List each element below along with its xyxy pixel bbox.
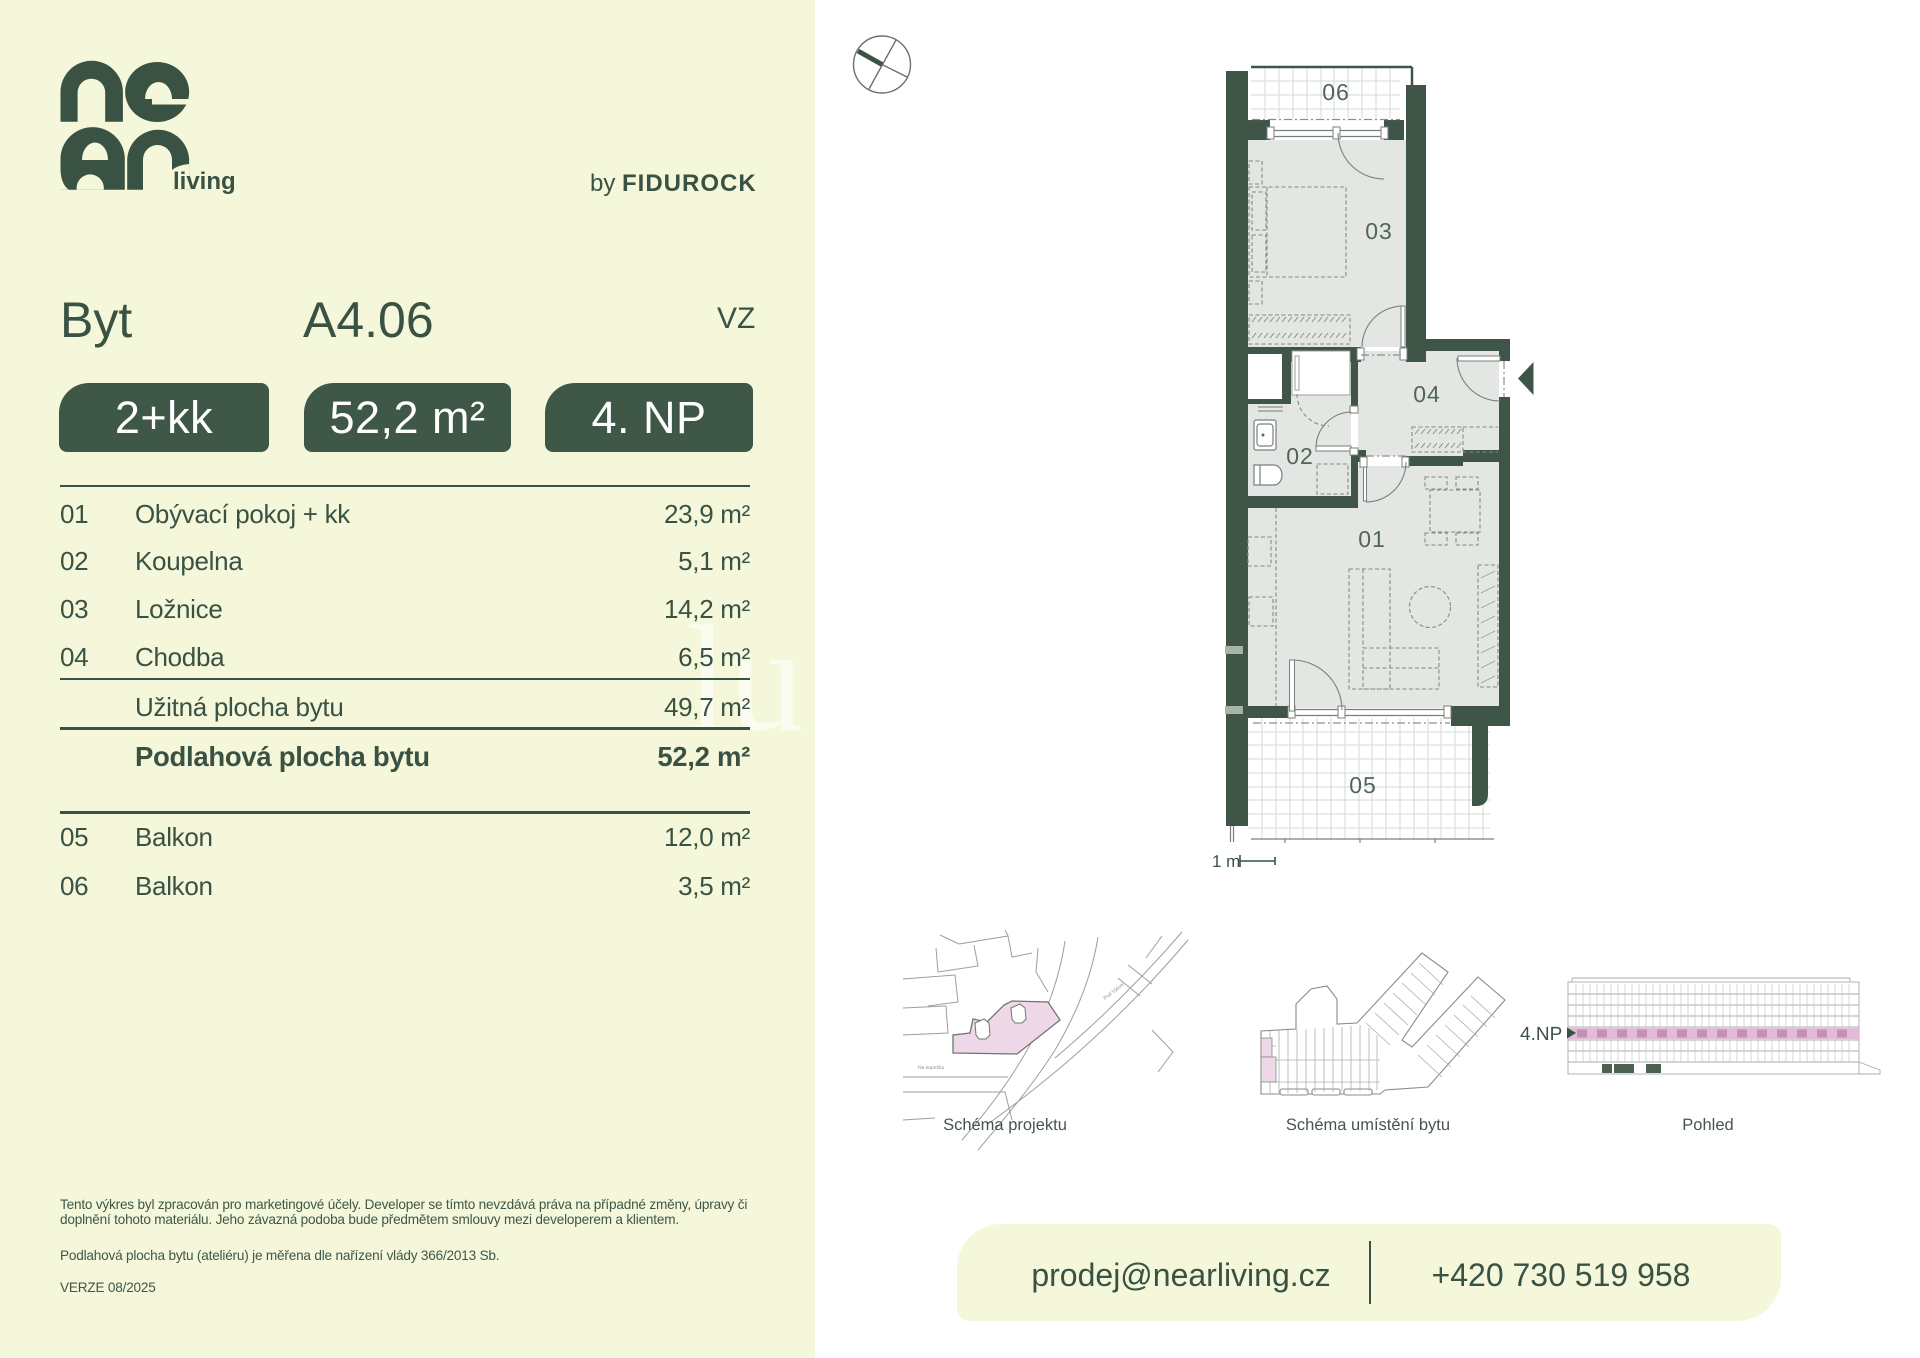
svg-text:02: 02 xyxy=(1286,443,1314,469)
svg-text:03: 03 xyxy=(1365,218,1393,244)
svg-text:01: 01 xyxy=(1358,526,1386,552)
svg-text:Pod Výtoní: Pod Výtoní xyxy=(1103,981,1126,1001)
svg-text:Schéma umístění bytu: Schéma umístění bytu xyxy=(1286,1116,1450,1134)
svg-text:1 m: 1 m xyxy=(1212,852,1240,871)
svg-text:05: 05 xyxy=(1349,772,1377,798)
svg-text:04: 04 xyxy=(1413,381,1441,407)
svg-text:Schéma projektu: Schéma projektu xyxy=(943,1116,1067,1134)
svg-text:Pohled: Pohled xyxy=(1682,1116,1733,1134)
svg-text:4.NP: 4.NP xyxy=(1520,1024,1562,1045)
svg-text:06: 06 xyxy=(1322,79,1350,105)
svg-text:Na kopečku: Na kopečku xyxy=(918,1065,945,1071)
